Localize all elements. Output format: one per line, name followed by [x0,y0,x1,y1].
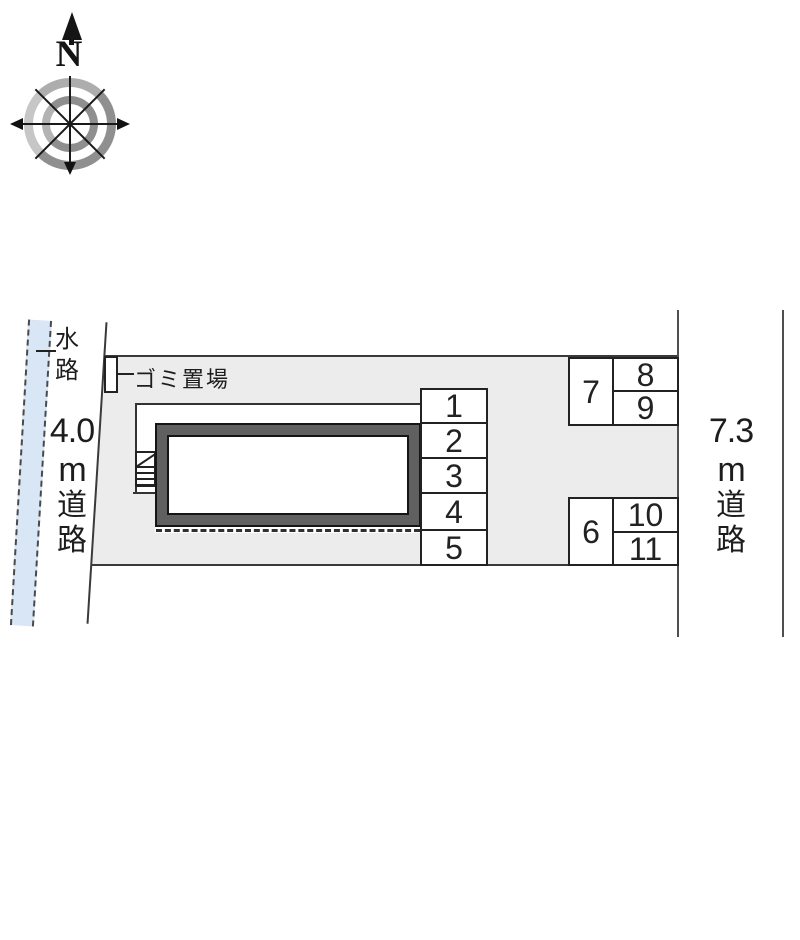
east-arrowhead-icon [117,118,130,130]
space-number: 4 [445,496,463,528]
yard-notch [133,492,155,533]
left-road-label: 4.0 m 道 路 [42,414,102,557]
space-number: 2 [445,425,463,457]
parking-space-7: 7 [568,357,614,426]
waterway-char: 水 [55,328,79,352]
building-outline [155,423,421,527]
space-number: 1 [445,390,463,422]
space-number: 5 [445,532,463,564]
space-number: 9 [637,392,655,424]
parking-space-2: 2 [420,422,488,459]
building-setback-dashed-line [156,529,420,532]
compass-rose: N [0,0,160,190]
parking-space-5: 5 [420,529,488,566]
parking-space-9: 9 [612,390,679,426]
west-arrowhead-icon [10,118,23,130]
space-number: 11 [629,533,662,565]
parking-space-3: 3 [420,457,488,494]
south-arrowhead-icon [64,162,76,175]
road-width-value: 7.3 [709,414,753,449]
parking-space-4: 4 [420,492,488,531]
space-number: 6 [582,516,600,548]
waterway-label: 水 路 [53,328,81,383]
site-plan: N ゴミ置場 1 2 3 4 5 7 8 9 6 10 11 水 路 4.0 m… [0,0,800,940]
right-road-far-line [782,310,784,637]
road-kanji: 路 [57,526,87,557]
road-kanji: 道 [716,491,746,522]
parking-space-6: 6 [568,497,614,566]
road-width-unit: m [717,453,744,488]
road-width-unit: m [58,453,85,488]
space-number: 8 [637,359,655,391]
garbage-label-tick [118,373,134,375]
space-number: 3 [445,460,463,492]
space-number: 7 [582,376,600,408]
garbage-area-box [104,356,118,393]
stairs-steps [137,466,154,485]
parking-space-11: 11 [612,531,679,566]
garbage-area-label: ゴミ置場 [134,362,230,394]
right-road-label: 7.3 m 道 路 [701,414,761,557]
waterway-char: 路 [55,359,79,383]
road-width-value: 4.0 [50,414,94,449]
stairs-icon [135,451,156,487]
compass-north-south-ray-icon [69,76,71,172]
road-kanji: 路 [716,526,746,557]
parking-space-10: 10 [612,497,679,533]
building-interior [167,435,409,515]
road-kanji: 道 [57,491,87,522]
parking-space-1: 1 [420,388,488,424]
parking-space-8: 8 [612,357,679,392]
north-label: N [50,36,88,73]
space-number: 10 [628,499,664,531]
